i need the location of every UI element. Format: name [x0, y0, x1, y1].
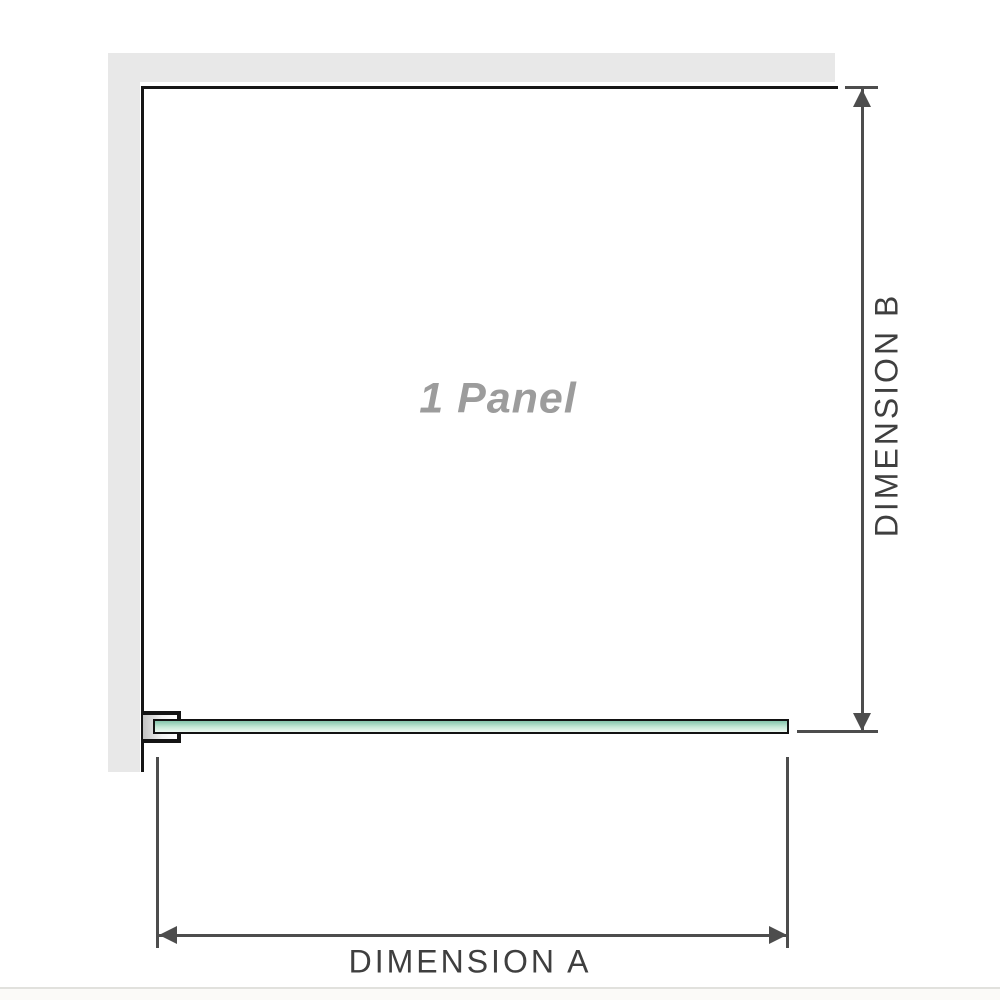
arrow-right-icon — [769, 926, 787, 944]
diagram-canvas: 1 Panel DIMENSION B DIMENSION A — [0, 0, 1000, 1000]
glass-panel-bar — [153, 719, 789, 734]
panel-outline-left — [141, 86, 144, 772]
wall-top — [108, 53, 835, 82]
wall-left — [108, 53, 140, 772]
arrow-up-icon — [853, 89, 871, 107]
arrow-left-icon — [159, 926, 177, 944]
panel-outline-top — [141, 86, 838, 89]
dimension-a-right-extension — [786, 757, 789, 948]
dimension-a-line — [159, 934, 787, 937]
arrow-down-icon — [853, 713, 871, 731]
dimension-b-line — [861, 89, 864, 731]
image-bottom-strip — [0, 989, 1000, 1000]
panel-label: 1 Panel — [419, 375, 577, 424]
dimension-b-label: DIMENSION B — [869, 293, 906, 538]
dimension-a-left-extension — [156, 757, 159, 948]
dimension-a-label: DIMENSION A — [349, 944, 592, 981]
